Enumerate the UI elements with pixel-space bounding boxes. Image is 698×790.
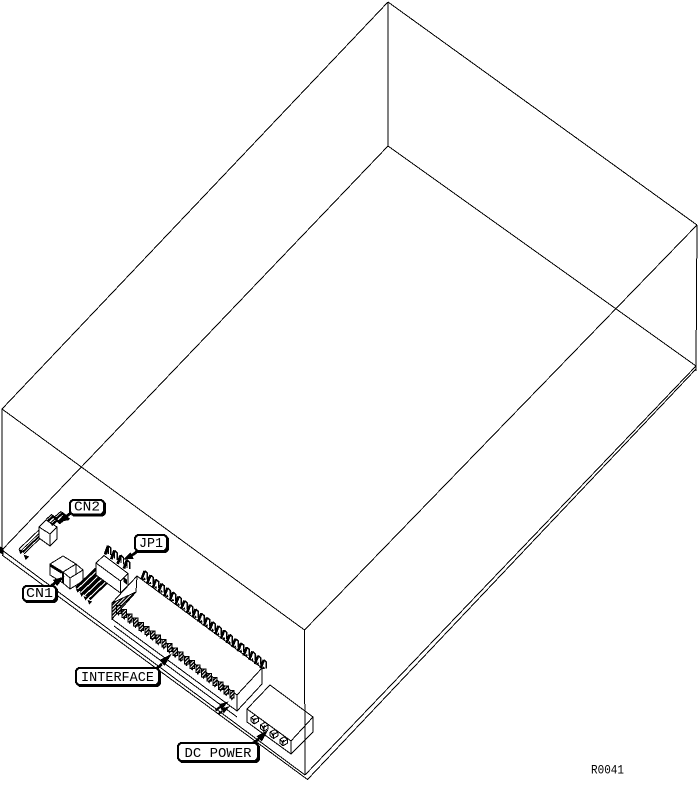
svg-text:JP1: JP1 [139,537,163,552]
svg-text:INTERFACE: INTERFACE [81,671,154,686]
svg-text:R0041: R0041 [591,764,624,778]
svg-text:CN1: CN1 [26,587,53,602]
svg-text:CN2: CN2 [74,501,100,516]
svg-text:DC POWER: DC POWER [185,747,252,762]
